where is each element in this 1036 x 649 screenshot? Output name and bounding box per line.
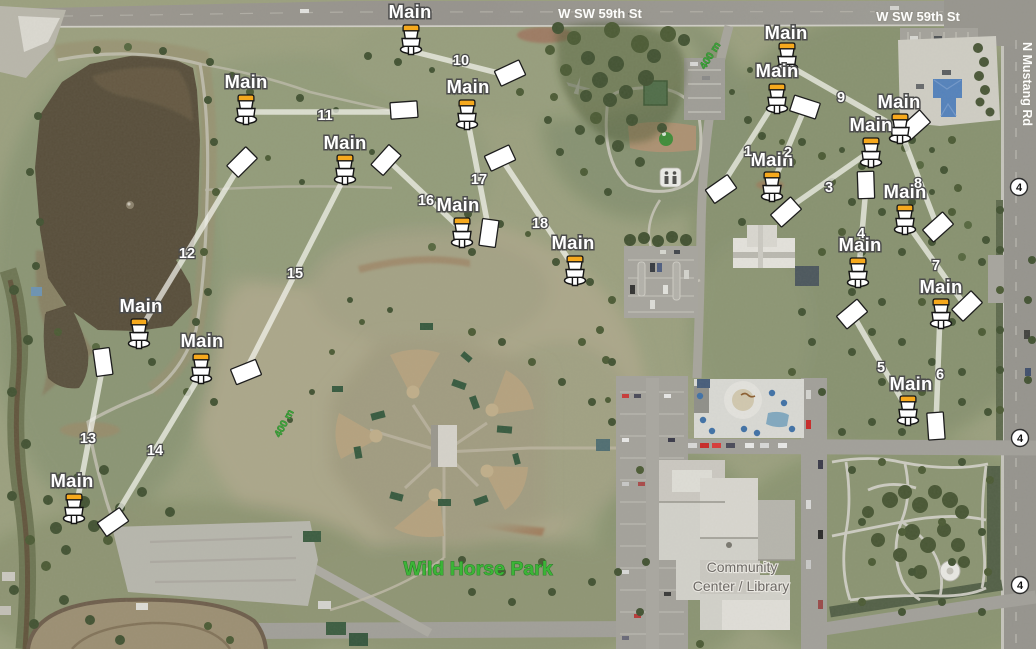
svg-text:9: 9 [837,90,845,106]
svg-text:10: 10 [453,53,469,69]
svg-text:2: 2 [784,145,792,161]
svg-text:16: 16 [418,193,434,209]
svg-text:18: 18 [532,216,548,232]
svg-text:Wild Horse Park: Wild Horse Park [403,558,553,580]
svg-text:W SW 59th St: W SW 59th St [558,6,642,21]
svg-text:Main: Main [765,22,808,43]
svg-text:17: 17 [471,172,487,188]
svg-text:7: 7 [932,258,940,274]
svg-text:5: 5 [877,360,885,376]
svg-text:12: 12 [179,246,195,262]
svg-text:6: 6 [936,367,944,383]
svg-text:4: 4 [857,226,865,242]
svg-text:Main: Main [878,91,921,112]
svg-text:4: 4 [1017,433,1024,445]
svg-text:3: 3 [825,180,833,196]
svg-text:Main: Main [890,373,933,394]
svg-text:Main: Main [920,276,963,297]
svg-text:4: 4 [1017,580,1024,592]
svg-text:Main: Main [324,132,367,153]
svg-text:Main: Main [51,470,94,491]
svg-text:Main: Main [120,295,163,316]
svg-text:Community: Community [707,559,778,575]
svg-text:W SW 59th St: W SW 59th St [876,9,960,24]
svg-text:8: 8 [914,176,922,192]
svg-text:Main: Main [437,194,480,215]
svg-text:4: 4 [1016,182,1023,194]
svg-text:13: 13 [80,431,96,447]
svg-text:11: 11 [317,108,332,124]
svg-text:N Mustang Rd: N Mustang Rd [1020,42,1034,126]
svg-text:Main: Main [389,1,432,22]
svg-text:Main: Main [552,232,595,253]
svg-text:Main: Main [181,330,224,351]
svg-text:Main: Main [756,60,799,81]
svg-text:Main: Main [850,114,893,135]
svg-text:Center / Library: Center / Library [693,578,789,594]
svg-text:Main: Main [447,76,490,97]
svg-text:1: 1 [744,144,752,160]
svg-text:Main: Main [225,71,268,92]
svg-text:15: 15 [287,266,303,282]
svg-text:14: 14 [147,443,163,459]
